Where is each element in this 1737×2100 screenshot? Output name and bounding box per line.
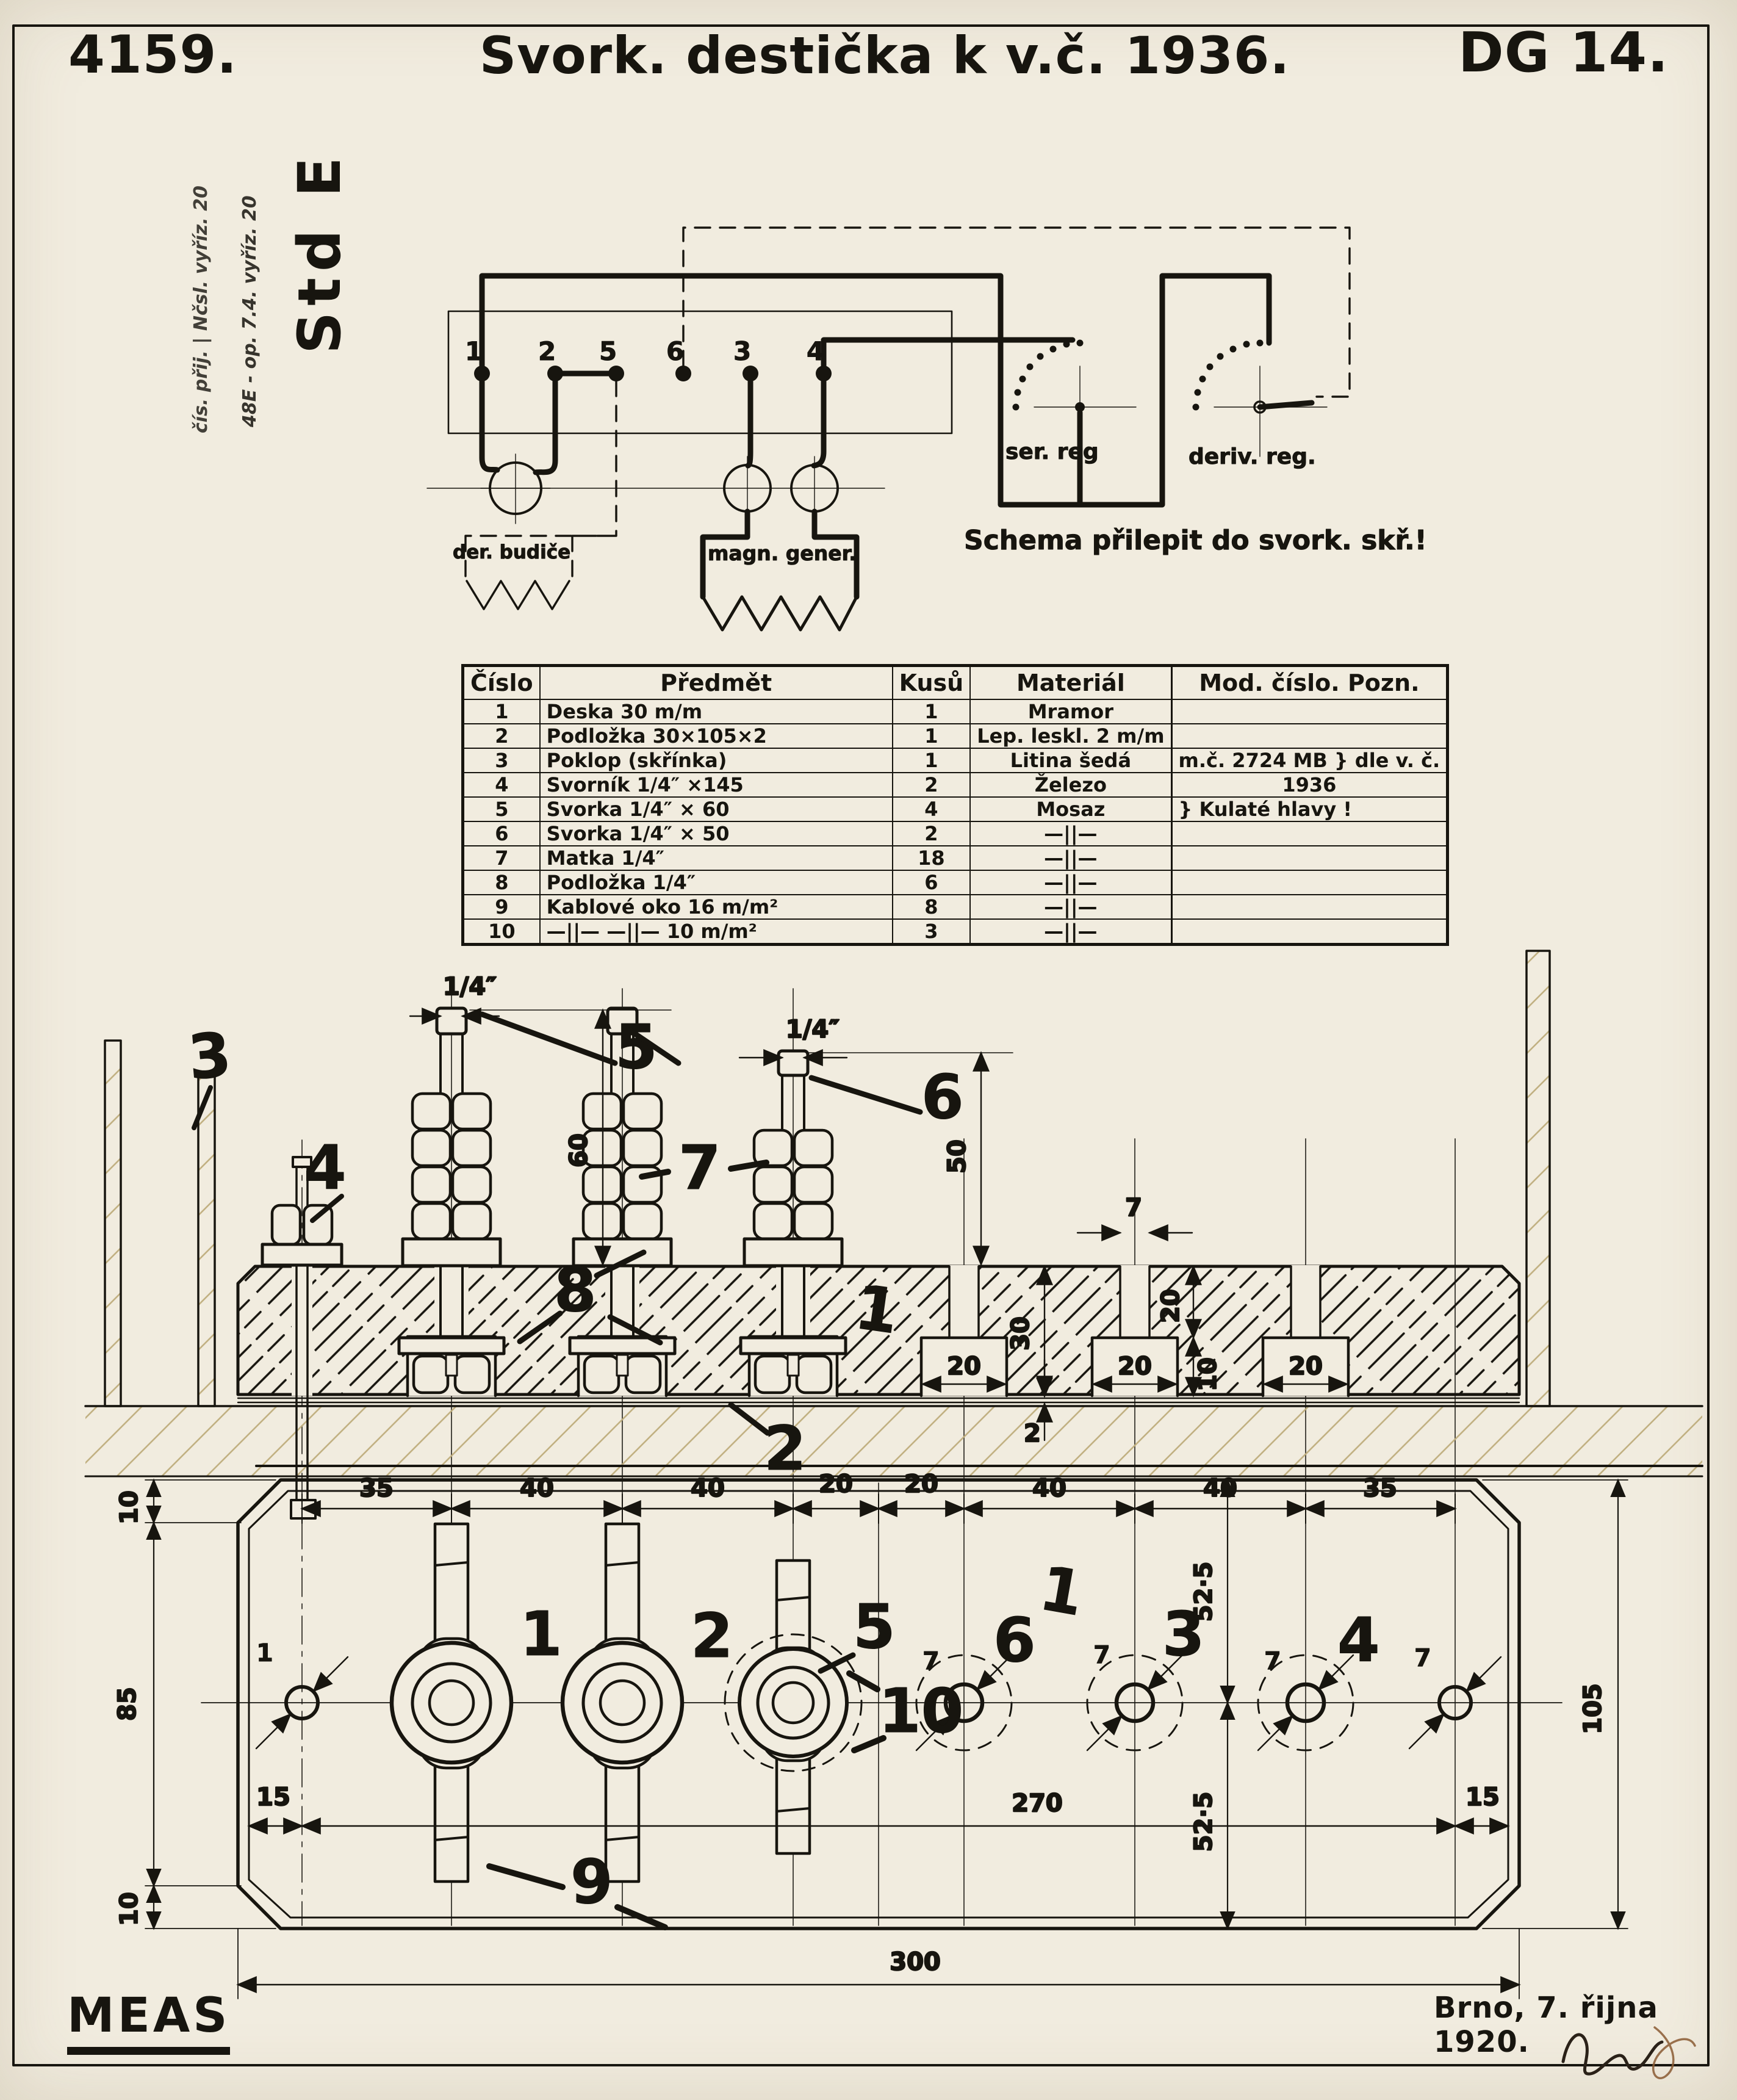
svg-text:270: 270	[1012, 1789, 1063, 1817]
svg-text:10: 10	[115, 1490, 143, 1524]
svg-text:7: 7	[922, 1647, 940, 1675]
svg-text:35: 35	[359, 1474, 394, 1503]
svg-text:3: 3	[185, 1019, 234, 1094]
terminal-label-6: 6	[666, 336, 684, 366]
svg-text:40: 40	[1203, 1474, 1237, 1503]
svg-text:20: 20	[1157, 1289, 1185, 1323]
terminal-label-4: 4	[807, 336, 824, 366]
svg-text:20: 20	[904, 1470, 938, 1498]
svg-text:2: 2	[1024, 1420, 1041, 1448]
svg-text:4: 4	[304, 1132, 347, 1203]
terminal-label-5: 5	[599, 336, 617, 366]
svg-text:10: 10	[1194, 1357, 1222, 1391]
svg-text:40: 40	[520, 1474, 554, 1503]
svg-text:6: 6	[921, 1061, 964, 1133]
terminal-1	[392, 1524, 511, 1882]
svg-text:52·5: 52·5	[1190, 1562, 1218, 1622]
svg-text:10: 10	[115, 1892, 143, 1926]
svg-text:2: 2	[764, 1413, 807, 1484]
scanned-technical-drawing: 4159. Svork. destička k v.č. 1936. DG 14…	[0, 0, 1737, 2100]
plan-top-chain: 35 40 40 20 20 40 40 35	[302, 1470, 1455, 1523]
svg-text:300: 300	[890, 1948, 941, 1976]
svg-text:40: 40	[1032, 1474, 1066, 1503]
svg-text:50: 50	[943, 1139, 971, 1174]
signature	[1563, 2027, 1695, 2078]
svg-text:7: 7	[1125, 1194, 1142, 1222]
svg-text:2: 2	[691, 1600, 733, 1672]
terminal-5	[725, 1561, 861, 1853]
svg-text:1: 1	[256, 1639, 273, 1667]
svg-text:35: 35	[1363, 1474, 1397, 1503]
deriv-reg-label: deriv. reg.	[1189, 444, 1316, 469]
svg-text:1/4″: 1/4″	[786, 1016, 840, 1044]
svg-text:20: 20	[1118, 1352, 1152, 1380]
svg-text:20: 20	[947, 1352, 981, 1380]
svg-text:40: 40	[691, 1474, 725, 1503]
terminal-label-3: 3	[733, 336, 751, 366]
drawing-linework: 1 2 5 6 3 4 ser. reg deriv. reg. der. bu…	[0, 0, 1737, 2100]
svg-text:1: 1	[1035, 1552, 1089, 1629]
svg-text:15: 15	[1465, 1783, 1500, 1811]
plan-left-dims: 10 85 10	[113, 1480, 276, 1929]
svg-text:9: 9	[570, 1846, 613, 1918]
cross-section-view: 1/4″ 1/4″ 60 50 7 30 20 10	[85, 951, 1702, 1925]
ser-reg-rheostat	[1013, 340, 1085, 413]
svg-text:1: 1	[520, 1598, 563, 1670]
svg-text:5: 5	[853, 1591, 896, 1662]
svg-text:6: 6	[993, 1604, 1036, 1676]
magn-gener-label: magn. gener.	[708, 541, 857, 565]
terminal-dots	[474, 366, 832, 381]
svg-text:7: 7	[1264, 1647, 1281, 1675]
ser-reg-label: ser. reg	[1005, 439, 1099, 464]
wiring-schematic: 1 2 5 6 3 4 ser. reg deriv. reg. der. bu…	[427, 228, 1427, 630]
svg-text:15: 15	[256, 1783, 290, 1811]
svg-text:60: 60	[565, 1133, 593, 1167]
svg-text:30: 30	[1007, 1316, 1035, 1351]
svg-text:1/4″: 1/4″	[443, 973, 497, 1001]
svg-text:105: 105	[1579, 1683, 1607, 1734]
sheet-frame	[13, 26, 1708, 2065]
terminal-label-1: 1	[465, 336, 483, 366]
terminal-2	[563, 1524, 682, 1882]
deriv-reg-rheostat	[1193, 340, 1264, 411]
plan-view: 35 40 40 20 20 40 40 35	[85, 1466, 1702, 1999]
der-budice-label: der. budiče	[453, 541, 570, 563]
svg-text:52·5: 52·5	[1190, 1792, 1218, 1852]
svg-text:7: 7	[1093, 1641, 1110, 1669]
svg-text:4: 4	[1337, 1604, 1380, 1676]
schematic-note: Schema přilepit do svork. skř.!	[964, 525, 1427, 556]
svg-text:10: 10	[879, 1675, 963, 1747]
svg-text:20: 20	[819, 1470, 853, 1498]
terminal-label-2: 2	[538, 336, 556, 366]
svg-text:85: 85	[113, 1687, 142, 1721]
svg-text:7: 7	[678, 1132, 721, 1203]
svg-text:7: 7	[1414, 1644, 1431, 1672]
plan-right-dims: 52·5 52·5 105	[1190, 1480, 1628, 1929]
svg-text:20: 20	[1289, 1352, 1323, 1380]
